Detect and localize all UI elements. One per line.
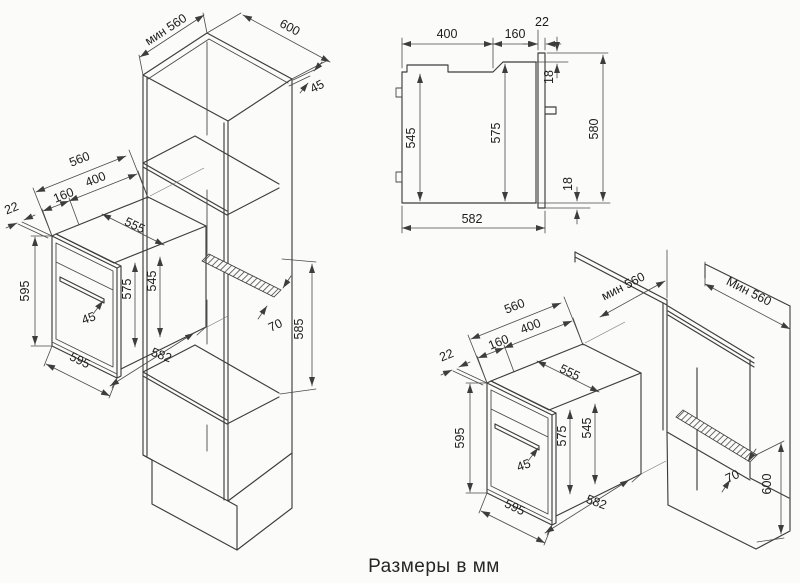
side-profile-view: 400 160 22 18 545 575 580 18 582 [396,15,610,233]
column-shelf-upper [143,136,279,215]
dim-base-555: 555 [557,362,582,384]
dim-column-depth-560: 560 [67,149,92,170]
dim-column-575: 575 [120,279,134,300]
dim-base-depth-560: 560 [502,296,527,317]
dim-profile-18-top: 18 [542,70,556,84]
dim-column-width-595: 595 [67,350,92,372]
base-corner-edge [663,300,668,505]
dim-profile-160: 160 [505,27,526,41]
base-right-panel [697,264,790,530]
dim-base-width-595: 595 [502,497,527,519]
dim-column-niche-585: 585 [292,319,306,340]
dim-column-160: 160 [51,185,76,206]
dim-column-22: 22 [2,199,20,217]
dim-profile-575: 575 [489,123,503,144]
column-projection-lines [150,168,228,327]
column-installation-view: мин 560 600 45 560 160 400 22 555 595 57… [2,11,330,550]
dim-base-160: 160 [486,332,511,353]
column-cabinet-inner-top [148,39,288,83]
profile-left-nub-2 [396,172,402,182]
column-vent-strip [202,254,281,297]
base-bottom-edges [668,505,790,549]
dim-base-vent-70: 70 [723,467,742,486]
profile-body-outline [402,62,536,203]
dim-profile-545: 545 [404,128,418,149]
dim-profile-400: 400 [437,27,458,41]
profile-mount-bracket [545,107,556,114]
oven-installation-diagram: мин 560 600 45 560 160 400 22 555 595 57… [0,0,800,583]
base-vent-strip [676,410,757,462]
dim-base-22: 22 [437,346,455,364]
dim-base-545: 545 [580,418,594,439]
profile-left-nub-1 [396,88,402,97]
base-oven [441,297,641,545]
units-caption: Размеры в мм [368,556,500,577]
dim-profile-580: 580 [587,119,601,140]
dim-column-height-595: 595 [18,281,32,302]
dim-column-545: 545 [145,271,159,292]
dim-profile-18-bottom: 18 [561,177,575,191]
dim-column-vent-70: 70 [266,316,285,335]
dim-base-height-595: 595 [453,428,467,449]
dim-base-niche-600: 600 [760,474,774,495]
technical-drawing-page: мин 560 600 45 560 160 400 22 555 595 57… [0,0,800,583]
dim-column-top-45: 45 [308,77,327,96]
base-projection-lines [585,322,666,474]
base-countertop-edges [668,306,754,367]
dim-profile-22: 22 [535,15,549,29]
dim-base-min-depth-counter: Мин 560 [724,274,774,309]
dim-profile-582: 582 [462,212,483,226]
column-oven [6,150,206,398]
base-left-wall [575,252,667,305]
dim-base-575: 575 [555,426,569,447]
base-cabinet-view: мин 560 Мин 560 560 160 400 22 555 595 5… [437,250,790,549]
